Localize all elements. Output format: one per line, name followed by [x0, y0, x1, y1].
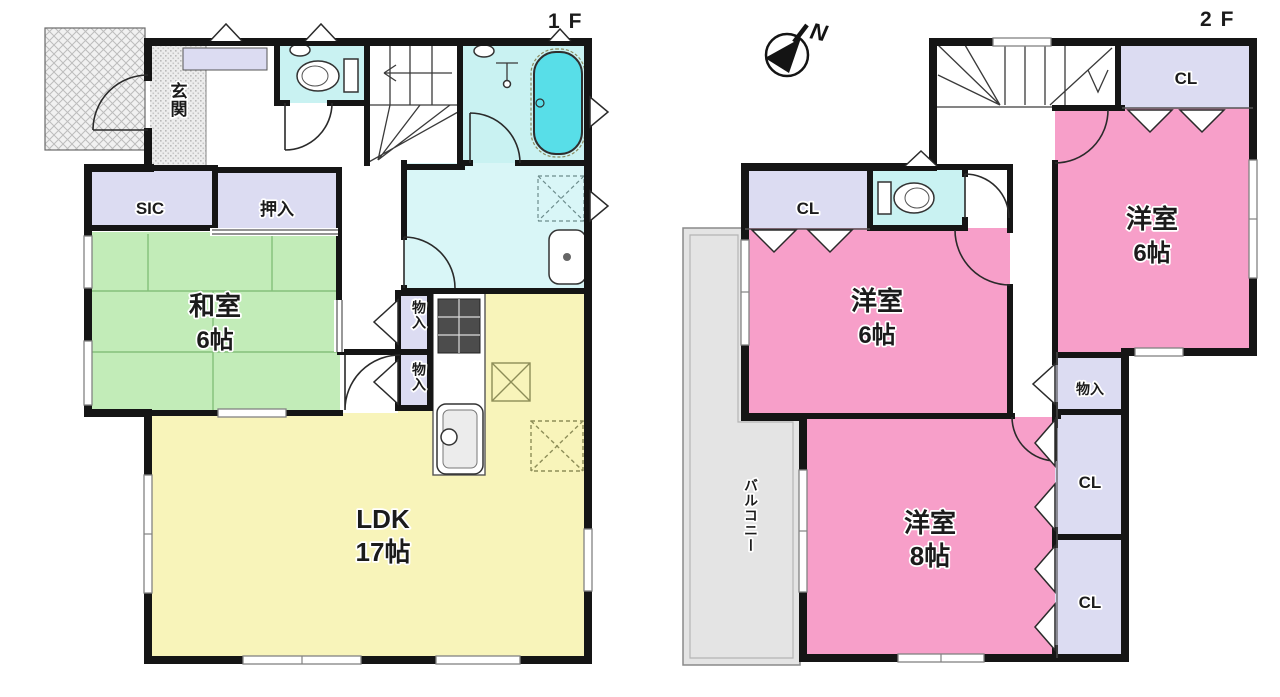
- bath-counter-icon: [474, 45, 494, 57]
- storage-2f-label: 物入: [1076, 381, 1104, 397]
- compass-north-label: N: [808, 17, 830, 46]
- sic-label: SIC: [136, 199, 164, 218]
- kitchen-counter: [433, 293, 485, 475]
- west-room-left-size: 6帖: [858, 322, 895, 349]
- stairs-1f: [367, 45, 460, 163]
- stairs-2f: [933, 45, 1118, 107]
- storage1-label: 物入: [411, 299, 427, 330]
- floorplan-svg: 1F: [0, 0, 1280, 697]
- ldk-size: 17帖: [356, 537, 411, 567]
- washitsu-size: 6帖: [196, 327, 233, 354]
- sic-closet: [88, 168, 215, 228]
- washstand-icon: [549, 230, 586, 284]
- oshiire-closet: [215, 170, 338, 228]
- floor1-title: 1F: [548, 10, 591, 33]
- floor2-plan: 2F: [683, 8, 1257, 665]
- washitsu-label: 和室: [189, 291, 241, 321]
- closet-hall-label: CL: [797, 199, 820, 218]
- closet-mid-label: CL: [1079, 473, 1102, 492]
- washitsu-room: [88, 232, 340, 413]
- floor2-title: 2F: [1200, 8, 1243, 31]
- west-room-large-label: 洋室: [904, 508, 956, 538]
- oshiire-label: 押入: [260, 199, 294, 219]
- west-room-large-size: 8帖: [910, 541, 950, 571]
- west-room-right-size: 6帖: [1133, 240, 1170, 267]
- porch-area: [45, 28, 145, 150]
- closet-top-right-label: CL: [1175, 69, 1198, 88]
- floor1-plan: 1F: [45, 10, 608, 664]
- shoe-cabinet: [183, 48, 267, 70]
- west-room-left-label: 洋室: [851, 286, 903, 316]
- west-room-right-label: 洋室: [1126, 204, 1178, 234]
- faucet-icon: [441, 429, 457, 445]
- ldk-label: LDK: [356, 504, 410, 534]
- bathtub-icon: [531, 49, 585, 157]
- compass-icon: N: [765, 17, 830, 76]
- floorplan-canvas: 1F: [0, 0, 1280, 697]
- balcony-label: バルコニー: [743, 478, 759, 553]
- closet-bottom-label: CL: [1079, 593, 1102, 612]
- storage2-label: 物入: [411, 361, 427, 392]
- genkan-label: 玄関: [168, 81, 188, 118]
- toilet2f-icon: [878, 182, 934, 214]
